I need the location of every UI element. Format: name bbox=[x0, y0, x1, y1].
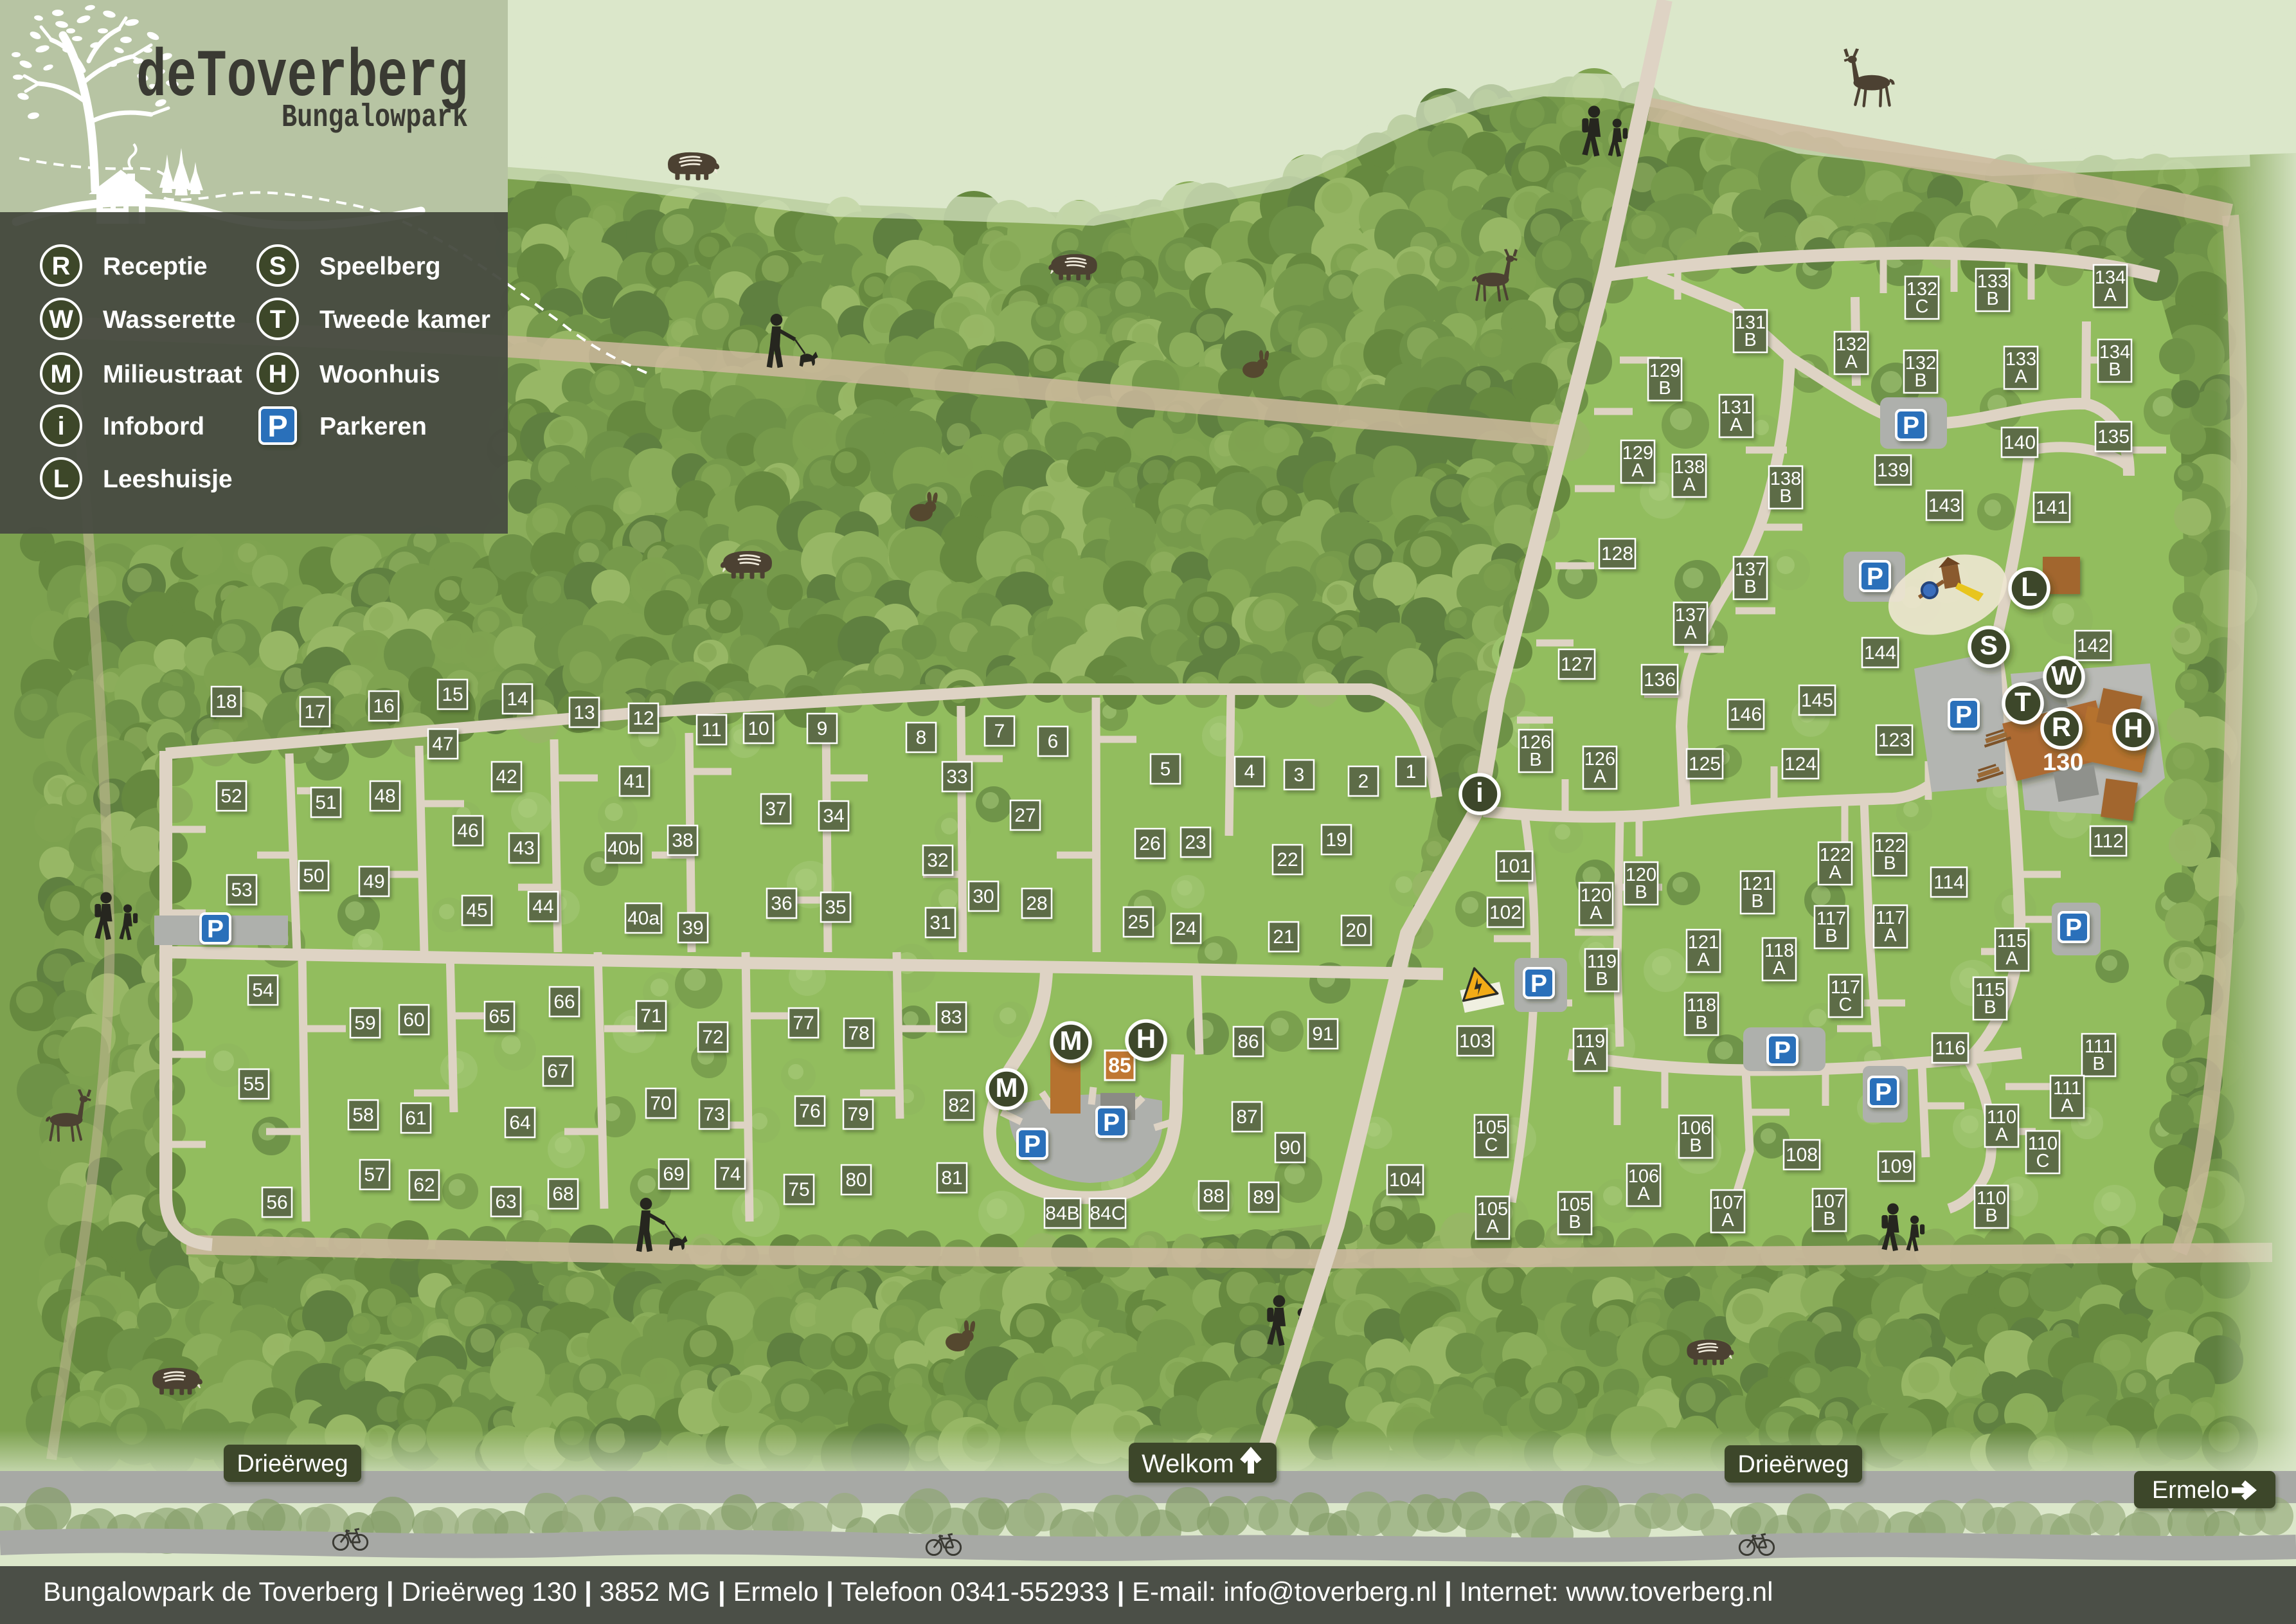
svg-text:B: B bbox=[1984, 997, 1996, 1018]
svg-text:5: 5 bbox=[1160, 759, 1171, 780]
svg-text:1: 1 bbox=[1406, 761, 1417, 782]
svg-text:P: P bbox=[1024, 1131, 1041, 1159]
svg-text:Tweede kamer: Tweede kamer bbox=[319, 306, 490, 334]
svg-text:Woonhuis: Woonhuis bbox=[319, 361, 440, 388]
svg-text:127: 127 bbox=[1561, 654, 1593, 675]
svg-text:81: 81 bbox=[941, 1168, 962, 1189]
svg-text:M: M bbox=[1060, 1025, 1082, 1056]
svg-text:71: 71 bbox=[640, 1006, 661, 1027]
svg-text:P: P bbox=[1867, 563, 1883, 591]
svg-text:37: 37 bbox=[765, 798, 786, 820]
svg-text:Speelberg: Speelberg bbox=[319, 253, 441, 280]
svg-text:64: 64 bbox=[509, 1112, 530, 1133]
svg-text:A: A bbox=[1590, 903, 1602, 923]
svg-text:W: W bbox=[2051, 660, 2077, 690]
svg-text:69: 69 bbox=[663, 1164, 684, 1185]
svg-text:H: H bbox=[269, 360, 287, 388]
svg-text:23: 23 bbox=[1185, 832, 1206, 853]
svg-text:T: T bbox=[270, 305, 285, 334]
svg-text:82: 82 bbox=[948, 1095, 969, 1116]
svg-text:8: 8 bbox=[916, 727, 927, 748]
svg-text:80: 80 bbox=[845, 1169, 866, 1191]
svg-text:145: 145 bbox=[1801, 690, 1833, 711]
svg-text:Leeshuisje: Leeshuisje bbox=[103, 465, 233, 493]
svg-text:85: 85 bbox=[1108, 1054, 1131, 1077]
svg-text:B: B bbox=[1744, 330, 1756, 350]
svg-text:i: i bbox=[57, 412, 64, 440]
svg-text:R: R bbox=[52, 252, 71, 280]
svg-text:109: 109 bbox=[1880, 1156, 1912, 1177]
svg-text:C: C bbox=[1915, 296, 1929, 317]
svg-text:6: 6 bbox=[1048, 731, 1059, 752]
svg-text:S: S bbox=[269, 252, 287, 280]
svg-text:20: 20 bbox=[1345, 920, 1367, 941]
svg-text:108: 108 bbox=[1786, 1144, 1818, 1166]
svg-text:A: A bbox=[1637, 1184, 1650, 1204]
svg-text:Ermelo: Ermelo bbox=[2152, 1477, 2229, 1504]
svg-text:Bungalowpark: Bungalowpark bbox=[282, 100, 468, 136]
svg-text:R: R bbox=[2052, 712, 2071, 742]
svg-text:13: 13 bbox=[573, 702, 595, 723]
svg-text:M: M bbox=[50, 360, 71, 388]
svg-text:91: 91 bbox=[1312, 1024, 1333, 1045]
svg-text:26: 26 bbox=[1139, 833, 1160, 854]
svg-text:P: P bbox=[1903, 412, 1919, 440]
svg-text:P: P bbox=[1955, 701, 1972, 729]
svg-text:55: 55 bbox=[243, 1074, 264, 1095]
svg-text:47: 47 bbox=[432, 734, 453, 755]
svg-text:101: 101 bbox=[1498, 856, 1530, 877]
svg-text:128: 128 bbox=[1601, 543, 1633, 564]
svg-text:C: C bbox=[1839, 995, 1852, 1015]
svg-text:B: B bbox=[1825, 926, 1837, 946]
svg-text:40a: 40a bbox=[627, 908, 659, 929]
svg-text:B: B bbox=[1658, 378, 1671, 399]
svg-text:24: 24 bbox=[1175, 918, 1196, 939]
svg-text:38: 38 bbox=[672, 830, 693, 851]
svg-text:Wasserette: Wasserette bbox=[103, 306, 236, 334]
svg-text:B: B bbox=[1883, 853, 1896, 874]
svg-text:123: 123 bbox=[1878, 730, 1910, 751]
svg-text:B: B bbox=[1695, 1013, 1707, 1033]
svg-text:84B: 84B bbox=[1045, 1203, 1079, 1224]
svg-text:A: A bbox=[1829, 862, 1842, 883]
svg-text:P: P bbox=[207, 916, 224, 943]
svg-text:B: B bbox=[1985, 1205, 1997, 1226]
svg-text:39: 39 bbox=[682, 917, 703, 939]
svg-text:75: 75 bbox=[788, 1179, 809, 1200]
svg-text:30: 30 bbox=[973, 886, 994, 907]
svg-text:P: P bbox=[1103, 1109, 1120, 1137]
svg-text:63: 63 bbox=[495, 1191, 516, 1213]
svg-text:116: 116 bbox=[1935, 1038, 1966, 1059]
svg-text:T: T bbox=[2014, 687, 2031, 717]
svg-text:Welkom: Welkom bbox=[1142, 1450, 1234, 1478]
svg-text:31: 31 bbox=[929, 912, 951, 934]
svg-text:114: 114 bbox=[1933, 872, 1964, 893]
svg-text:60: 60 bbox=[403, 1009, 424, 1031]
svg-text:B: B bbox=[1689, 1135, 1701, 1156]
svg-text:A: A bbox=[1631, 460, 1644, 481]
svg-text:A: A bbox=[1995, 1124, 2008, 1145]
svg-text:77: 77 bbox=[793, 1013, 814, 1034]
svg-text:86: 86 bbox=[1237, 1031, 1259, 1052]
svg-text:Milieustraat: Milieustraat bbox=[103, 361, 242, 388]
svg-text:68: 68 bbox=[552, 1184, 573, 1205]
svg-text:A: A bbox=[1721, 1210, 1734, 1231]
svg-text:33: 33 bbox=[946, 766, 967, 788]
svg-text:16: 16 bbox=[373, 696, 394, 717]
svg-text:B: B bbox=[1568, 1212, 1581, 1232]
svg-text:B: B bbox=[1914, 370, 1926, 391]
svg-text:103: 103 bbox=[1459, 1031, 1491, 1052]
svg-text:9: 9 bbox=[817, 718, 828, 739]
svg-text:P: P bbox=[1875, 1079, 1892, 1106]
svg-text:C: C bbox=[1485, 1135, 1498, 1155]
svg-text:B: B bbox=[1744, 577, 1756, 597]
svg-text:35: 35 bbox=[825, 897, 846, 918]
svg-text:P: P bbox=[1530, 970, 1547, 998]
svg-text:130: 130 bbox=[2043, 749, 2083, 776]
svg-text:i: i bbox=[1476, 777, 1484, 807]
svg-text:A: A bbox=[1845, 352, 1858, 372]
svg-text:B: B bbox=[1595, 969, 1608, 989]
svg-text:88: 88 bbox=[1203, 1186, 1224, 1207]
svg-text:43: 43 bbox=[513, 838, 534, 859]
svg-text:136: 136 bbox=[1644, 669, 1676, 690]
svg-text:66: 66 bbox=[553, 991, 575, 1013]
svg-text:W: W bbox=[49, 305, 73, 334]
svg-text:A: A bbox=[1584, 1049, 1597, 1069]
svg-text:84C: 84C bbox=[1090, 1203, 1125, 1224]
svg-text:146: 146 bbox=[1730, 704, 1762, 725]
svg-text:A: A bbox=[2104, 285, 2117, 305]
svg-text:58: 58 bbox=[352, 1105, 373, 1126]
svg-text:52: 52 bbox=[220, 786, 242, 807]
svg-text:A: A bbox=[1697, 950, 1710, 970]
svg-text:124: 124 bbox=[1784, 753, 1816, 775]
svg-text:112: 112 bbox=[2093, 831, 2124, 852]
svg-text:11: 11 bbox=[701, 719, 721, 741]
svg-text:B: B bbox=[1986, 289, 1998, 309]
svg-text:104: 104 bbox=[1389, 1169, 1421, 1191]
svg-text:36: 36 bbox=[771, 893, 792, 914]
svg-text:141: 141 bbox=[2036, 497, 2068, 518]
svg-text:A: A bbox=[1593, 766, 1606, 787]
svg-text:B: B bbox=[1823, 1209, 1835, 1229]
svg-text:40b: 40b bbox=[607, 838, 640, 859]
svg-text:65: 65 bbox=[489, 1006, 510, 1027]
svg-text:10: 10 bbox=[748, 718, 769, 739]
svg-text:143: 143 bbox=[1928, 495, 1960, 516]
svg-text:B: B bbox=[1751, 891, 1763, 912]
svg-text:A: A bbox=[2014, 366, 2027, 387]
svg-text:P: P bbox=[2065, 914, 2082, 942]
svg-text:19: 19 bbox=[1325, 829, 1347, 851]
svg-text:45: 45 bbox=[466, 900, 487, 921]
svg-text:15: 15 bbox=[442, 684, 463, 705]
svg-text:50: 50 bbox=[303, 865, 324, 887]
svg-text:C: C bbox=[2036, 1151, 2050, 1171]
svg-text:61: 61 bbox=[405, 1108, 426, 1129]
svg-text:25: 25 bbox=[1127, 912, 1149, 933]
svg-text:3: 3 bbox=[1294, 764, 1305, 786]
svg-text:28: 28 bbox=[1026, 893, 1047, 914]
svg-text:A: A bbox=[2061, 1096, 2074, 1116]
svg-text:57: 57 bbox=[364, 1164, 385, 1186]
svg-text:A: A bbox=[1683, 474, 1696, 495]
svg-text:62: 62 bbox=[413, 1175, 435, 1196]
svg-text:125: 125 bbox=[1689, 753, 1721, 775]
svg-text:Receptie: Receptie bbox=[103, 253, 208, 280]
svg-text:B: B bbox=[2092, 1054, 2104, 1074]
svg-text:48: 48 bbox=[374, 786, 395, 807]
svg-text:S: S bbox=[1980, 630, 1998, 660]
svg-text:P: P bbox=[267, 409, 287, 443]
svg-text:2: 2 bbox=[1358, 771, 1369, 792]
svg-text:A: A bbox=[2005, 948, 2018, 969]
svg-text:7: 7 bbox=[994, 721, 1005, 742]
svg-text:A: A bbox=[1684, 622, 1697, 643]
svg-text:53: 53 bbox=[231, 880, 252, 901]
svg-text:B: B bbox=[2108, 359, 2121, 380]
svg-text:102: 102 bbox=[1489, 902, 1521, 923]
svg-text:M: M bbox=[996, 1072, 1018, 1103]
svg-text:H: H bbox=[2124, 713, 2143, 743]
svg-text:34: 34 bbox=[823, 806, 844, 827]
svg-text:79: 79 bbox=[847, 1104, 868, 1125]
svg-text:Infobord: Infobord bbox=[103, 413, 204, 440]
svg-text:72: 72 bbox=[702, 1027, 723, 1048]
svg-text:70: 70 bbox=[650, 1093, 671, 1114]
svg-text:B: B bbox=[1635, 882, 1647, 903]
svg-text:89: 89 bbox=[1253, 1187, 1274, 1208]
svg-text:17: 17 bbox=[304, 701, 325, 723]
svg-text:21: 21 bbox=[1273, 926, 1294, 948]
svg-text:78: 78 bbox=[848, 1023, 869, 1044]
svg-text:46: 46 bbox=[457, 820, 478, 842]
svg-text:L: L bbox=[53, 465, 69, 493]
svg-text:27: 27 bbox=[1014, 805, 1036, 826]
svg-text:76: 76 bbox=[799, 1101, 820, 1122]
svg-text:41: 41 bbox=[623, 771, 645, 792]
svg-text:135: 135 bbox=[2097, 426, 2130, 447]
svg-text:32: 32 bbox=[927, 850, 948, 871]
svg-text:H: H bbox=[1136, 1024, 1156, 1054]
svg-text:87: 87 bbox=[1236, 1106, 1257, 1128]
svg-text:A: A bbox=[1730, 415, 1743, 435]
svg-text:56: 56 bbox=[266, 1192, 287, 1213]
svg-text:Parkeren: Parkeren bbox=[319, 413, 427, 440]
svg-text:B: B bbox=[1779, 486, 1791, 507]
svg-text:A: A bbox=[1773, 958, 1786, 979]
svg-text:42: 42 bbox=[496, 766, 517, 788]
svg-text:12: 12 bbox=[632, 708, 654, 729]
svg-text:73: 73 bbox=[703, 1104, 724, 1125]
svg-text:Bungalowpark de Toverberg | Dr: Bungalowpark de Toverberg | Drieërweg 13… bbox=[43, 1576, 1773, 1607]
svg-text:44: 44 bbox=[532, 896, 553, 917]
svg-text:14: 14 bbox=[507, 689, 528, 710]
svg-text:A: A bbox=[1884, 925, 1897, 946]
svg-text:Drieërweg: Drieërweg bbox=[237, 1450, 348, 1477]
svg-text:Drieërweg: Drieërweg bbox=[1737, 1451, 1849, 1478]
svg-text:90: 90 bbox=[1279, 1137, 1300, 1159]
svg-text:P: P bbox=[1774, 1037, 1791, 1065]
svg-text:A: A bbox=[1486, 1216, 1499, 1237]
svg-text:54: 54 bbox=[252, 980, 273, 1001]
svg-text:51: 51 bbox=[315, 792, 336, 813]
svg-text:L: L bbox=[2021, 572, 2038, 602]
svg-text:59: 59 bbox=[354, 1013, 375, 1034]
svg-text:22: 22 bbox=[1277, 849, 1298, 871]
svg-text:144: 144 bbox=[1864, 642, 1896, 663]
svg-text:139: 139 bbox=[1877, 460, 1909, 481]
svg-text:74: 74 bbox=[719, 1164, 740, 1185]
svg-text:83: 83 bbox=[940, 1007, 962, 1028]
svg-text:49: 49 bbox=[363, 871, 384, 892]
svg-text:B: B bbox=[1529, 750, 1541, 770]
svg-text:140: 140 bbox=[2004, 432, 2036, 453]
svg-text:18: 18 bbox=[215, 691, 237, 712]
svg-text:67: 67 bbox=[547, 1061, 568, 1082]
svg-text:142: 142 bbox=[2077, 635, 2109, 656]
svg-text:4: 4 bbox=[1244, 761, 1255, 782]
